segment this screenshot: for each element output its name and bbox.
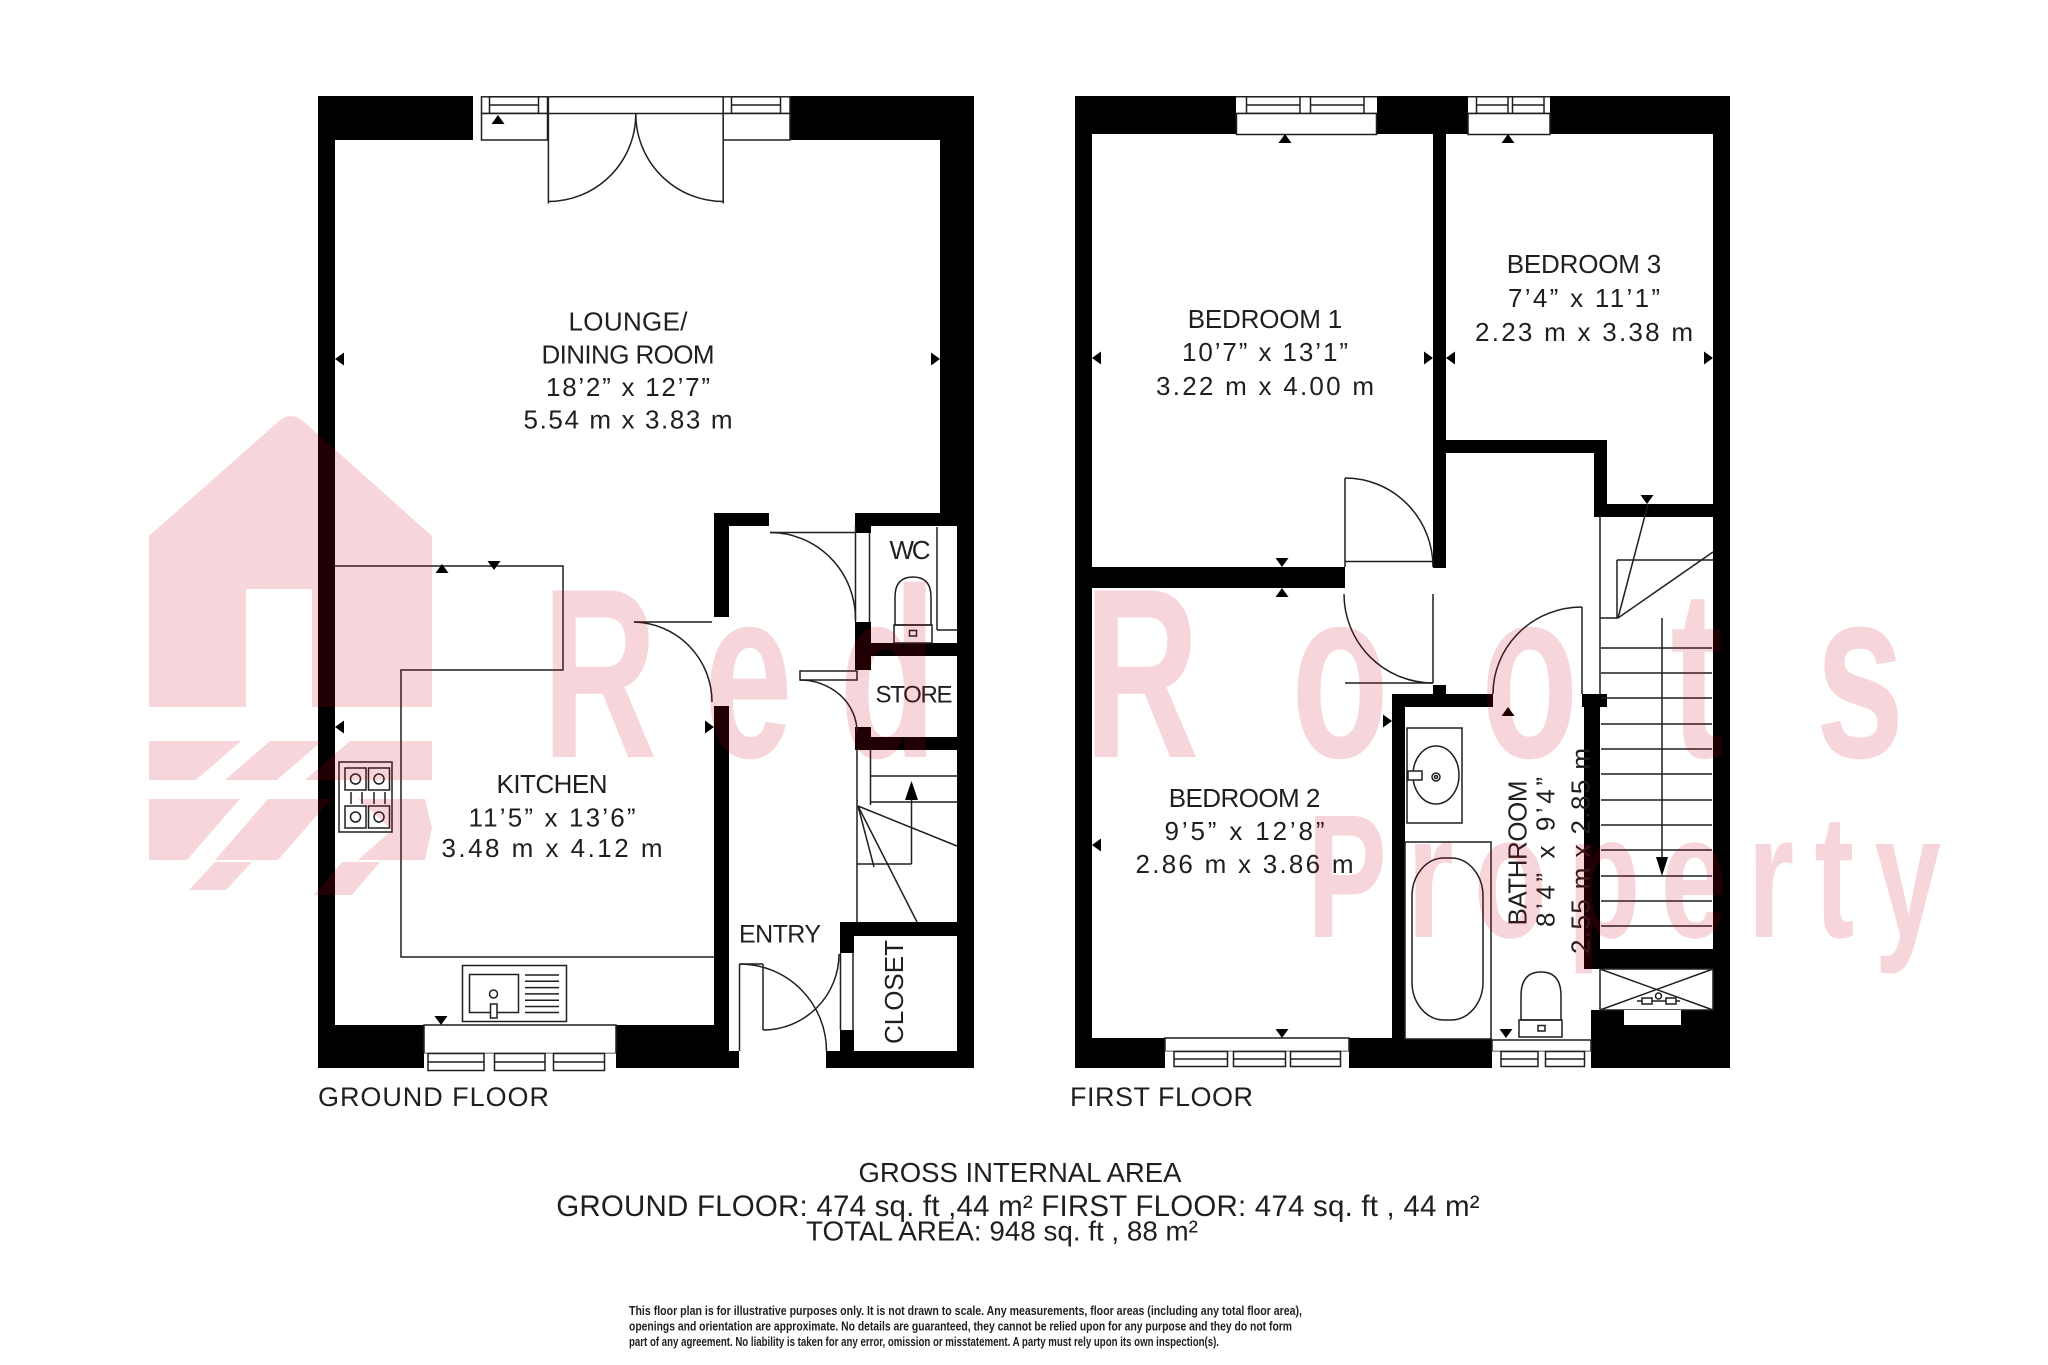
svg-text:10’7” x 13’1”: 10’7” x 13’1”: [1182, 337, 1348, 367]
svg-text:BEDROOM 3: BEDROOM 3: [1507, 249, 1662, 279]
svg-text:part of any agreement. No liab: part of any agreement. No liability is t…: [629, 1335, 1219, 1349]
svg-text:ENTRY: ENTRY: [739, 921, 821, 949]
svg-text:This floor plan is for illustr: This floor plan is for illustrative purp…: [629, 1304, 1302, 1318]
svg-text:FIRST FLOOR: FIRST FLOOR: [1070, 1082, 1253, 1112]
svg-text:CLOSET: CLOSET: [879, 940, 909, 1044]
svg-text:BEDROOM 1: BEDROOM 1: [1188, 304, 1343, 334]
svg-text:TOTAL AREA: 948 sq. ft , 88 m²: TOTAL AREA: 948 sq. ft , 88 m²: [806, 1216, 1198, 1247]
svg-text:5.54 m x 3.83 m: 5.54 m x 3.83 m: [524, 404, 733, 434]
svg-text:openings and orientation are a: openings and orientation are approximate…: [629, 1320, 1292, 1334]
svg-text:GROUND FLOOR: GROUND FLOOR: [318, 1082, 549, 1112]
svg-text:18’2” x 12’7”: 18’2” x 12’7”: [546, 372, 710, 402]
svg-text:DINING ROOM: DINING ROOM: [542, 340, 715, 370]
svg-text:GROSS INTERNAL AREA: GROSS INTERNAL AREA: [859, 1157, 1183, 1188]
svg-text:LOUNGE/: LOUNGE/: [569, 307, 689, 337]
svg-text:Red: Red: [542, 539, 937, 809]
